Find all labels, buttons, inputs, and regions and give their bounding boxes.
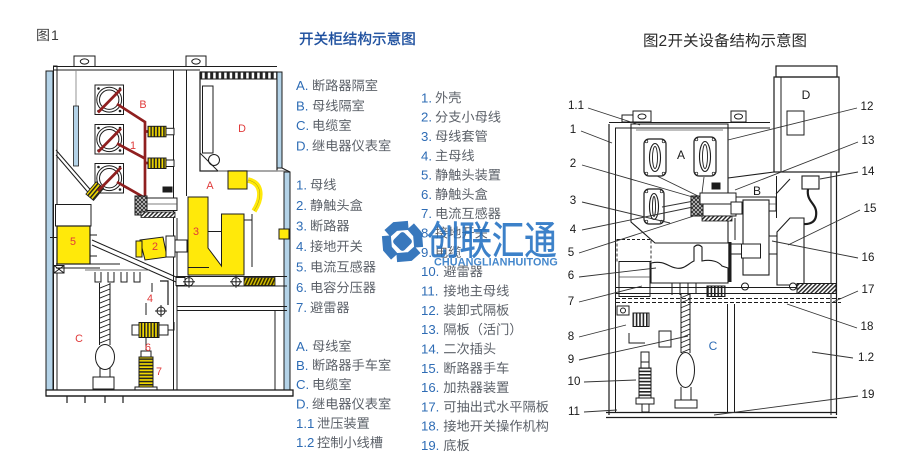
svg-text:C: C [75,333,83,345]
svg-text:2: 2 [570,157,576,170]
svg-text:6.: 6. [296,280,307,295]
svg-text:12: 12 [861,100,874,113]
svg-text:D: D [802,88,811,102]
svg-text:C.: C. [296,377,309,392]
svg-text:11: 11 [568,405,580,418]
svg-text:18.: 18. [421,419,439,434]
svg-text:13: 13 [862,134,875,147]
svg-text:D.: D. [296,138,309,153]
svg-text:3: 3 [570,194,576,207]
svg-text:4: 4 [570,223,577,236]
svg-text:13.: 13. [421,322,439,337]
svg-text:B.: B. [296,358,308,373]
svg-text:9: 9 [568,353,574,366]
svg-text:C.: C. [296,118,309,133]
svg-text:C: C [709,339,718,353]
svg-text:1: 1 [570,123,576,136]
svg-text:1: 1 [51,27,59,43]
svg-text:D.: D. [296,397,309,412]
svg-text:2.: 2. [421,110,432,125]
svg-text:9.: 9. [421,245,432,260]
svg-text:3: 3 [193,226,199,238]
svg-text:7.: 7. [421,206,432,221]
svg-text:1: 1 [130,140,136,152]
svg-text:1.: 1. [421,90,432,105]
svg-text:7: 7 [568,295,574,308]
svg-text:2: 2 [152,241,158,253]
svg-text:19.: 19. [421,438,439,453]
svg-text:3.: 3. [296,219,307,234]
svg-text:10: 10 [568,375,581,388]
svg-text:6: 6 [568,269,574,282]
svg-text:11.: 11. [421,284,438,299]
svg-text:6.: 6. [421,187,432,202]
svg-text:1.: 1. [296,177,307,192]
svg-text:B.: B. [296,99,308,114]
svg-text:B: B [753,184,761,198]
svg-text:1.1: 1.1 [568,99,584,112]
svg-text:A: A [206,180,214,192]
svg-text:A.: A. [296,339,308,354]
svg-text:2.: 2. [296,198,307,213]
svg-text:CHUANGLIANHUITONG: CHUANGLIANHUITONG [434,257,558,269]
svg-text:D: D [238,123,246,135]
svg-text:4.: 4. [296,239,307,254]
svg-text:7.: 7. [296,300,307,315]
svg-text:12.: 12. [421,303,439,318]
svg-text:5.: 5. [296,260,307,275]
svg-text:4: 4 [147,293,153,305]
svg-text:17.: 17. [421,399,439,414]
svg-text:16.: 16. [421,380,439,395]
svg-text:16: 16 [862,251,875,264]
svg-text:7: 7 [156,366,162,378]
svg-text:5.: 5. [421,168,432,183]
svg-text:14: 14 [862,165,875,178]
svg-text:2: 2 [659,33,668,50]
svg-text:6: 6 [145,342,151,354]
svg-text:19: 19 [862,388,875,401]
svg-text:5: 5 [70,236,76,248]
svg-text:17: 17 [862,283,875,296]
svg-text:1.2: 1.2 [296,435,314,450]
svg-text:4.: 4. [421,148,432,163]
svg-text:A.: A. [296,78,308,93]
svg-text:B: B [139,99,146,111]
svg-text:A: A [677,148,685,162]
svg-text:1.1: 1.1 [296,416,314,431]
svg-text:18: 18 [861,320,874,333]
svg-text:1.2: 1.2 [858,351,874,364]
svg-text:15.: 15. [421,361,439,376]
svg-text:3.: 3. [421,129,432,144]
svg-text:5: 5 [568,246,574,259]
svg-text:14.: 14. [421,342,439,357]
svg-text:8: 8 [568,330,574,343]
svg-text:15: 15 [864,202,877,215]
